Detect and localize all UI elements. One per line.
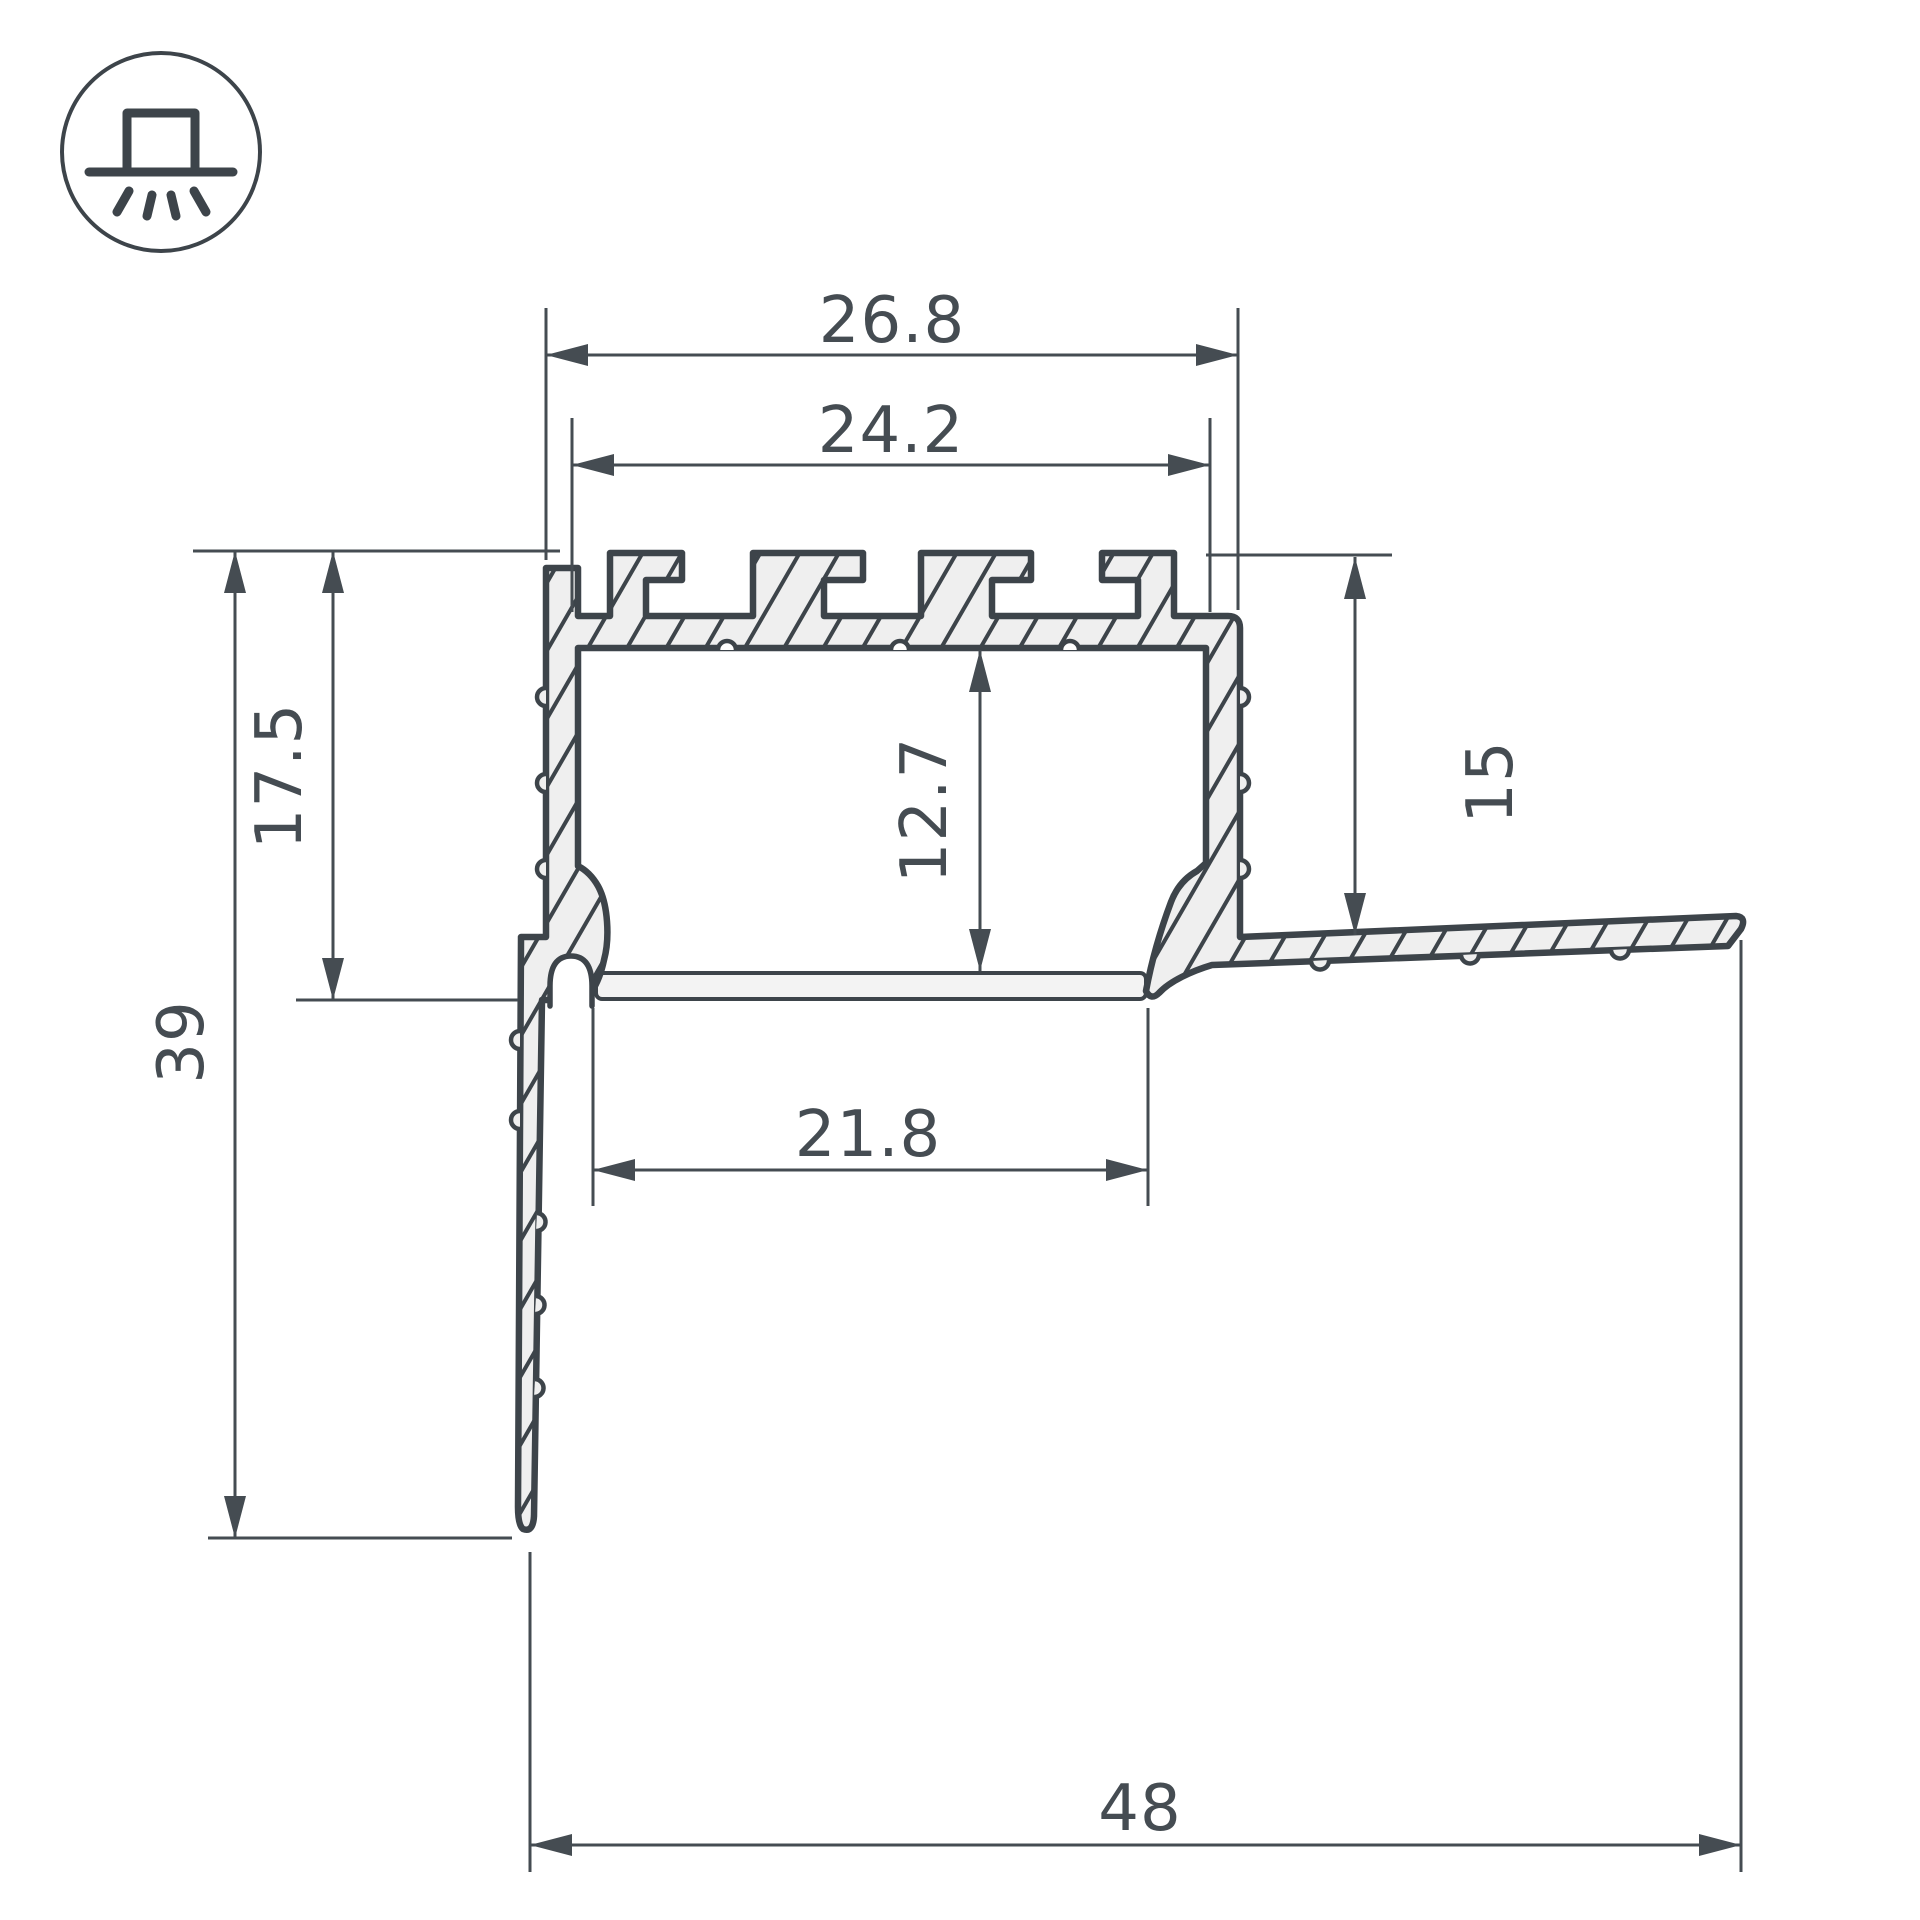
dimension-bottom-opening-width: 21.8 bbox=[593, 1008, 1148, 1206]
profile-cross-section bbox=[511, 553, 1743, 1530]
dimensions: 26.8 24.2 17.5 39 bbox=[145, 284, 1741, 1872]
dimension-label: 39 bbox=[145, 1000, 219, 1083]
drawing-canvas: 26.8 24.2 17.5 39 bbox=[0, 0, 1920, 1920]
section-hatching bbox=[518, 553, 1743, 1530]
recessed-light-icon bbox=[62, 53, 260, 251]
arch-slot bbox=[550, 956, 592, 1006]
profile-material-fill bbox=[518, 553, 1743, 1530]
icon-light-rays bbox=[117, 191, 206, 216]
cover-plate bbox=[596, 973, 1146, 999]
dimension-total-width: 48 bbox=[530, 940, 1741, 1872]
profile-outline bbox=[518, 553, 1743, 1530]
dimension-label: 15 bbox=[1454, 740, 1528, 823]
dimension-right-flange-drop: 15 bbox=[1206, 555, 1528, 935]
dimension-left-total-height: 39 bbox=[145, 551, 512, 1538]
icon-fixture-box bbox=[127, 113, 195, 172]
dimension-left-recess-depth: 17.5 bbox=[243, 551, 518, 1000]
dimension-label: 12.7 bbox=[888, 737, 962, 884]
icon-circle bbox=[62, 53, 260, 251]
dimension-label: 26.8 bbox=[819, 284, 966, 358]
technical-drawing: 26.8 24.2 17.5 39 bbox=[0, 0, 1920, 1920]
dimension-inner-cavity-height: 12.7 bbox=[888, 650, 991, 971]
dimension-label: 48 bbox=[1098, 1772, 1181, 1846]
dimension-label: 24.2 bbox=[818, 394, 965, 468]
dimension-label: 17.5 bbox=[243, 703, 317, 850]
dimension-label: 21.8 bbox=[795, 1098, 942, 1172]
